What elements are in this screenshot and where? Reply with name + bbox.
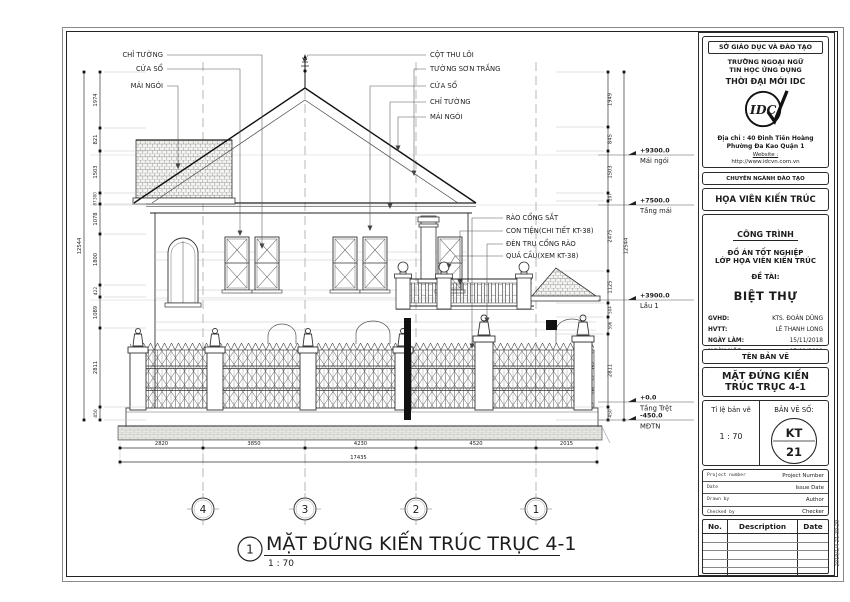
callout-label: MÁI NGÓI <box>430 112 462 121</box>
ground-floor-arches <box>268 319 588 344</box>
balcony-balustrade <box>395 262 535 310</box>
grid-bubble-label: 1 <box>533 504 540 516</box>
dim-label: 1078 <box>93 212 99 225</box>
level-name: Tầng mái <box>639 207 672 215</box>
sheet-number-label: BẢN VẼ SỐ: <box>760 406 828 414</box>
sheet-number-line2: 21 <box>786 445 802 459</box>
level-name: Mái ngói <box>640 157 669 165</box>
topic-value: BIỆT THỰ <box>703 289 828 303</box>
callout-label: RÀO CỔNG SẮT <box>506 212 559 222</box>
dim-label: 1974 <box>93 93 99 107</box>
project-line1: ĐỒ ÁN TỐT NGHIỆP <box>703 249 828 257</box>
dim-label: 1949 <box>608 93 614 106</box>
major-value: HỌA VIÊN KIẾN TRÚC <box>715 195 816 205</box>
gate-post-left <box>473 315 495 410</box>
level-name: Lầu 1 <box>640 302 659 310</box>
meta-label: Checked by <box>707 510 735 515</box>
dim-label: 1503 <box>608 165 614 178</box>
meta-label: Date <box>707 485 718 490</box>
dim-label: 450 <box>608 409 614 418</box>
meta-box: Project numberProject Number DateIssue D… <box>702 469 829 516</box>
grid-bubble-label: 4 <box>200 504 207 516</box>
meta-value: Author <box>806 497 824 503</box>
scale-value: 1 : 70 <box>703 432 759 441</box>
dim-label: 1089 <box>93 306 99 319</box>
dim-label: 2811 <box>608 364 614 377</box>
callout-label: CON TIỆN(CHI TIẾT KT-38) <box>506 225 594 235</box>
dim-labels-right: 1949 845 1503 297 2475 1125 504 596 2811… <box>608 93 630 418</box>
dim-label: 4520 <box>469 441 482 447</box>
dim-label: 300 <box>93 192 98 200</box>
plot-timestamp: 2019/1/4 21:30:29 <box>835 505 841 581</box>
rev-empty-row <box>703 534 828 543</box>
project-label: CÔNG TRÌNH <box>733 230 798 241</box>
sheet-number-bubble: KT 21 <box>760 416 828 466</box>
downpipe <box>404 318 411 420</box>
website-url: http://www.idcvn.com.vn <box>703 159 828 166</box>
callout-label: QUẢ CẦU(XEM KT-38) <box>506 250 579 260</box>
callout-label: TƯỜNG SƠN TRẮNG <box>429 63 500 73</box>
dim-label: 4230 <box>354 441 367 447</box>
arched-window <box>165 238 201 307</box>
callout-label: ĐÈN TRỤ CỔNG RÀO <box>506 238 576 248</box>
elevation-drawing: 1974 821 1503 300 87 1078 1800 422 1089 … <box>65 30 698 577</box>
dim-label: 1800 <box>93 253 99 266</box>
title-block-school: SỞ GIÁO DỤC VÀ ĐÀO TẠO TRƯỜNG NGOẠI NGỮ … <box>702 36 829 168</box>
level-name: Tầng Trệt <box>639 405 672 413</box>
dim-total-label: 12544 <box>624 237 630 254</box>
dim-label: 821 <box>93 135 99 145</box>
dim-label: 87 <box>93 200 98 206</box>
dim-label: 845 <box>608 134 614 144</box>
school-name-line2: TIN HỌC ỨNG DỤNG <box>703 66 828 74</box>
front-fence <box>126 315 598 426</box>
grid-bubbles: 4 3 2 1 <box>187 493 552 525</box>
level-elev: +9300.0 <box>640 148 670 155</box>
dim-label: 297 <box>608 193 613 201</box>
sheet-name-label: TÊN BẢN VẼ <box>742 353 789 361</box>
major-value-box: HỌA VIÊN KIẾN TRÚC <box>702 188 829 211</box>
info-label: HVTT: <box>708 327 727 333</box>
project-line2: LỚP HỌA VIÊN KIẾN TRÚC <box>703 257 828 265</box>
dim-total-label: 12544 <box>77 237 83 254</box>
view-scale: 1 : 70 <box>268 559 294 569</box>
dim-labels-left: 1974 821 1503 300 87 1078 1800 422 1089 … <box>77 93 99 418</box>
dim-label: 2820 <box>155 441 168 447</box>
callout-label: MÁI NGÓI <box>131 81 163 90</box>
department-name: SỞ GIÁO DỤC VÀ ĐÀO TẠO <box>708 41 823 54</box>
meta-label: Project number <box>707 473 746 478</box>
rev-col-no: No. <box>703 520 728 533</box>
grid-bubble-label: 3 <box>302 504 309 516</box>
pilaster <box>418 216 439 283</box>
rev-col-description: Description <box>728 520 798 533</box>
school-brand: THỜI ĐẠI MỚI IDC <box>703 77 828 86</box>
sheet-name-label-box: TÊN BẢN VẼ <box>702 349 829 364</box>
rev-empty-row <box>703 568 828 576</box>
view-number: 1 <box>246 543 254 557</box>
meta-label: Drawn by <box>707 497 729 502</box>
info-value: LÊ THANH LONG <box>775 327 823 333</box>
dim-label: 3850 <box>247 441 260 447</box>
info-label: NGÀY LÀM: <box>708 338 744 344</box>
left-tile-roof <box>133 140 235 204</box>
level-elev: -450.0 <box>640 413 663 420</box>
level-name: MĐTN <box>640 423 660 431</box>
callout-label: CHỈ TƯỜNG <box>122 50 163 59</box>
info-value: 15/11/2018 <box>790 338 823 344</box>
dim-label: 450 <box>93 409 99 418</box>
dim-label: 504 <box>608 306 613 314</box>
meta-value: Project Number <box>782 473 824 479</box>
rev-col-date: Date <box>798 520 828 533</box>
rev-empty-row <box>703 543 828 552</box>
level-elev: +3900.0 <box>640 293 670 300</box>
sheet-name-line2: TRÚC TRỤC 4-1 <box>703 382 828 393</box>
major-label: CHUYÊN NGÀNH ĐÀO TẠO <box>726 176 804 182</box>
callout-label: CỘT THU LÔI <box>430 50 474 59</box>
dim-label: 1503 <box>93 165 99 178</box>
sheet-number-line1: KT <box>786 426 803 440</box>
dim-label: 422 <box>93 287 99 296</box>
dim-label: 1125 <box>608 280 614 293</box>
level-elev: +0.0 <box>640 395 657 402</box>
dim-label: 2475 <box>608 229 614 242</box>
callout-label: CHỈ TƯỜNG <box>430 97 471 106</box>
idc-logo: IDC <box>743 87 789 131</box>
dim-label: 2015 <box>560 441 573 447</box>
sheet-name-line1: MẶT ĐỨNG KIẾN <box>703 371 828 382</box>
scale-label: Tỉ lệ bản vẽ <box>703 406 759 414</box>
cornice <box>146 203 476 213</box>
rev-empty-row <box>703 551 828 560</box>
dim-labels-bottom: 2820 3850 4230 4520 2015 17435 <box>155 441 573 461</box>
info-label: GVHD: <box>708 316 729 322</box>
dim-label: 2811 <box>93 361 99 374</box>
gate-post-right <box>572 315 594 410</box>
grid-bubble-label: 2 <box>413 504 420 516</box>
idc-logo-text: IDC <box>748 102 776 117</box>
address-line2: Phường Đa Kao Quận 1 <box>703 143 828 151</box>
architectural-sheet: { "drawing": { "callouts_left": ["CHỈ TƯ… <box>0 0 850 602</box>
rev-empty-row <box>703 560 828 569</box>
meta-value: Checker <box>802 509 824 515</box>
dim-label: 596 <box>608 321 613 329</box>
project-box: CÔNG TRÌNH ĐỒ ÁN TỐT NGHIỆP LỚP HỌA VIÊN… <box>702 214 829 346</box>
revision-table: No. Description Date <box>702 519 829 574</box>
school-name-line1: TRƯỜNG NGOẠI NGỮ <box>703 58 828 66</box>
address-line1: Địa chỉ : 40 Đinh Tiên Hoàng <box>703 135 828 143</box>
topic-label: ĐỀ TÀI: <box>703 273 828 281</box>
info-value: KTS. ĐOÀN DŨNG <box>772 316 823 322</box>
scale-number-box: Tỉ lệ bản vẽ 1 : 70 BẢN VẼ SỐ: KT 21 <box>702 400 829 466</box>
meta-value: Issue Date <box>795 485 824 491</box>
view-title: MẶT ĐỨNG KIẾN TRÚC TRỤC 4-1 <box>266 530 576 555</box>
level-elev: +7500.0 <box>640 198 670 205</box>
right-tile-roof <box>528 268 600 301</box>
view-title-block: 1 MẶT ĐỨNG KIẾN TRÚC TRỤC 4-1 1 : 70 <box>238 530 576 569</box>
sheet-name-box: MẶT ĐỨNG KIẾN TRÚC TRỤC 4-1 <box>702 367 829 397</box>
callout-label: CỬA SỔ <box>430 80 457 90</box>
dim-total-label: 17435 <box>350 455 367 461</box>
callout-label: CỬA SỔ <box>136 63 163 73</box>
major-label-box: CHUYÊN NGÀNH ĐÀO TẠO <box>702 172 829 185</box>
gate-lamp-box <box>546 320 557 330</box>
